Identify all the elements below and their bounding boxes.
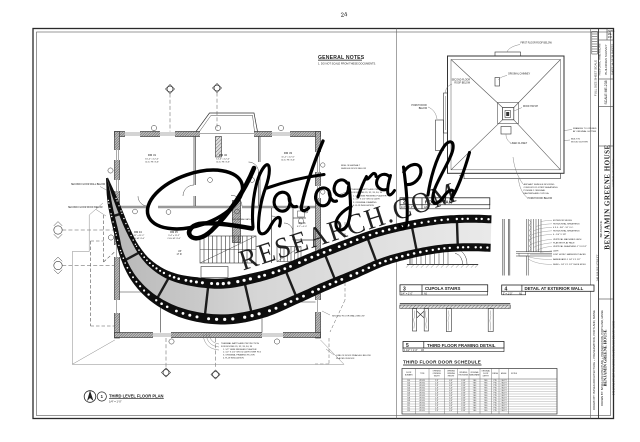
svg-text:RISE OF ASPHALT: RISE OF ASPHALT	[341, 164, 361, 167]
svg-text:2. 1/2" X 1/2" WOOD LATH OVER: 2. 1/2" X 1/2" WOOD LATH OVER PLS	[223, 351, 262, 354]
svg-text:SECOND FLOOR WALL BELOW: SECOND FLOOR WALL BELOW	[332, 315, 365, 318]
svg-text:313: 313	[407, 410, 410, 412]
svg-text:3: 3	[403, 286, 406, 292]
svg-text:ROOF HATCH: ROOF HATCH	[523, 105, 538, 108]
svg-text:LINEN CLOSET: LINEN CLOSET	[511, 143, 528, 145]
svg-text:PLASTER FLAT FACE: PLASTER FLAT FACE	[553, 242, 575, 245]
svg-text:1 1/2" = 1'-0": 1 1/2" = 1'-0"	[404, 349, 418, 352]
svg-text:PER SPREAD BATH: PER SPREAD BATH	[232, 218, 251, 221]
svg-text:SECOND FLOOR WALL BELOW: SECOND FLOOR WALL BELOW	[71, 183, 106, 186]
svg-text:CLG. HT. 8'-6": CLG. HT. 8'-6"	[216, 162, 230, 164]
svg-text:THIRD FLOOR FRAMING DETAIL: THIRD FLOOR FRAMING DETAIL	[427, 343, 496, 348]
svg-text:BENJAMIN GREENE HOUSE: BENJAMIN GREENE HOUSE	[602, 329, 607, 386]
svg-text:WOOD: WOOD	[419, 410, 425, 412]
svg-text:3" = 1'-0": 3" = 1'-0"	[503, 292, 513, 295]
svg-text:CUMBERLAND COUNTY: CUMBERLAND COUNTY	[612, 159, 615, 187]
svg-text:SECOND FLOOR: SECOND FLOOR	[452, 80, 471, 82]
svg-text:NUMBER: NUMBER	[405, 374, 413, 376]
svg-text:FOR ROOMS 31, 32, 33, 34, 35: FOR ROOMS 31, 32, 33, 34, 35	[351, 192, 383, 194]
svg-text:THIRD FLOOR DOOR SCHEDULE: THIRD FLOOR DOOR SCHEDULE	[403, 360, 481, 365]
svg-text:PLACED IN ROOF: PLACED IN ROOF	[336, 357, 355, 360]
svg-text:AT ORIGINAL GUTTER: AT ORIGINAL GUTTER	[573, 130, 597, 133]
svg-text:BENJAMIN GREENE HOUSE: BENJAMIN GREENE HOUSE	[603, 144, 611, 249]
svg-text:WOOD GUTTER: WOOD GUTTER	[571, 142, 588, 144]
svg-text:DEPTH: DEPTH	[483, 375, 490, 377]
svg-text:3. ORIGINAL FRAMING FLOOR: 3. ORIGINAL FRAMING FLOOR	[223, 354, 255, 357]
svg-text:WIDTH: WIDTH	[434, 375, 440, 377]
svg-text:RM 33: RM 33	[284, 151, 293, 155]
svg-text:NOTES: NOTES	[511, 373, 518, 375]
svg-text:16'-2" x 12'-6": 16'-2" x 12'-6"	[145, 158, 159, 160]
svg-text:RM 34: RM 34	[134, 230, 142, 234]
svg-text:248 MAINE STREET: 248 MAINE STREET	[596, 254, 600, 281]
svg-text:ASPHALT SHINGLE ROOFING: ASPHALT SHINGLE ROOFING	[524, 183, 555, 186]
svg-text:THIRD LEVEL FLOOR PLAN: THIRD LEVEL FLOOR PLAN	[109, 393, 164, 398]
svg-text:HORIZONTAL SHEATHING: HORIZONTAL SHEATHING	[553, 230, 580, 233]
svg-text:1/4" = 1'-0": 1/4" = 1'-0"	[401, 293, 413, 296]
svg-text:1. DO NOT SCALE FROM THESE DOC: 1. DO NOT SCALE FROM THESE DOCUMENTS.	[318, 62, 376, 66]
svg-text:DRAWN BY: BASEA ARCHITECTURE +: DRAWN BY: BASEA ARCHITECTURE + PRESERVAT…	[592, 310, 596, 410]
svg-text:RM 31: RM 31	[148, 153, 157, 157]
svg-text:PORCH ROOF: PORCH ROOF	[411, 105, 427, 107]
svg-text:PORCH ROOF BELOW: PORCH ROOF BELOW	[528, 198, 553, 200]
svg-text:4 - 1/4" X 7/8": 4 - 1/4" X 7/8"	[553, 234, 566, 236]
svg-text:SHINGLE ROOF BELOW: SHINGLE ROOF BELOW	[341, 168, 367, 170]
svg-text:THERMAL BATTS AND PROTECTION: THERMAL BATTS AND PROTECTION	[221, 342, 259, 345]
svg-text:4: 4	[505, 286, 508, 292]
svg-text:2'-8": 2'-8"	[435, 410, 439, 412]
svg-text:11'-2" x 12'-6": 11'-2" x 12'-6"	[281, 156, 295, 158]
svg-text:2 BUTT: 2 BUTT	[501, 410, 508, 412]
svg-text:JUST HORIZ. MARGINS PLACED: JUST HORIZ. MARGINS PLACED	[553, 253, 586, 256]
svg-text:BUILDINGS SURVEY: BUILDINGS SURVEY	[604, 44, 608, 74]
svg-text:LINE OF ROOF PEAK ALL BELOW: LINE OF ROOF PEAK ALL BELOW	[336, 354, 372, 357]
svg-text:6'-8": 6'-8"	[449, 410, 453, 412]
svg-text:BASEBOARD 1 1/4" X 5 1/2": BASEBOARD 1 1/4" X 5 1/2"	[553, 258, 581, 261]
svg-text:FIRST FLOOR ROOF BELOW: FIRST FLOOR ROOF BELOW	[521, 43, 553, 45]
svg-text:HORIZONTAL SHEATHING: HORIZONTAL SHEATHING	[553, 223, 580, 226]
svg-text:SECOND FLOOR ROOF BELOW: SECOND FLOOR ROOF BELOW	[68, 207, 103, 209]
svg-text:OVER WOOD STRIP SHEATHING: OVER WOOD STRIP SHEATHING	[524, 186, 558, 189]
svg-text:ROOF BELOW: ROOF BELOW	[454, 83, 470, 85]
svg-text:FOR ROOMS 31, 32, 33, 34, 35: FOR ROOMS 31, 32, 33, 34, 35	[221, 346, 253, 348]
svg-text:BRUNSWICK: BRUNSWICK	[600, 221, 603, 238]
svg-text:HISTORIC AMERICAN: HISTORIC AMERICAN	[598, 44, 602, 76]
svg-text:1/4" = 1'-0": 1/4" = 1'-0"	[109, 400, 122, 404]
svg-text:FINISH: FINISH	[492, 373, 498, 375]
svg-text:THICKNESS: THICKNESS	[458, 374, 469, 376]
svg-text:1. 1/2" GWB FINISHED PLASTER: 1. 1/2" GWB FINISHED PLASTER	[223, 348, 257, 351]
svg-text:HARDWARE: HARDWARE	[469, 373, 480, 376]
svg-text:HEIGHT: HEIGHT	[448, 375, 456, 377]
svg-text:238: 238	[608, 36, 613, 39]
svg-text:DETAIL AT EXTERIOR WALL: DETAIL AT EXTERIOR WALL	[525, 286, 584, 291]
svg-text:LATH: LATH	[553, 250, 559, 253]
svg-text:SHEET 24 OF 38 SHEETS: SHEET 24 OF 38 SHEETS	[611, 44, 615, 76]
svg-text:HINGE: HINGE	[501, 373, 507, 375]
svg-text:FULL SIZE SHEET SCALE: FULL SIZE SHEET SCALE	[593, 60, 597, 96]
svg-text:POSSIBLY ORIGINAL: POSSIBLY ORIGINAL	[524, 189, 546, 192]
svg-text:VERTICAL SHEATHING 1" X 8 1/2": VERTICAL SHEATHING 1" X 8 1/2"	[553, 245, 587, 248]
svg-text:1 3/8": 1 3/8"	[461, 410, 466, 412]
svg-text:ORIGINAL CHIMNEY: ORIGINAL CHIMNEY	[508, 73, 531, 76]
svg-text:EXTERIOR SIDING: EXTERIOR SIDING	[553, 220, 572, 222]
svg-text:SHIM + 1/4" X 1 1/2" SHOE MOLD: SHIM + 1/4" X 1 1/2" SHOE MOLD	[553, 264, 587, 266]
svg-text:5: 5	[406, 343, 409, 349]
svg-text:4 X 4 - 3/4" : 16" O.C.: 4 X 4 - 3/4" : 16" O.C.	[553, 227, 574, 229]
svg-text:CUPOLA STAIRS: CUPOLA STAIRS	[425, 286, 460, 291]
svg-text:BUILT IN: BUILT IN	[571, 139, 580, 141]
svg-text:14'-0" x 12'-6": 14'-0" x 12'-6"	[216, 158, 230, 160]
svg-text:BELOW: BELOW	[419, 108, 428, 110]
svg-text:17 R: 17 R	[177, 253, 182, 256]
svg-text:4. R-19 INSULATION: 4. R-19 INSULATION	[223, 357, 244, 360]
svg-text:CLG. HT. 8'-6": CLG. HT. 8'-6"	[145, 162, 159, 164]
svg-text:SCALE ME-238: SCALE ME-238	[604, 80, 608, 104]
svg-text:248 MAINE STREET BRUNSWICK C: 248 MAINE STREET BRUNSWICK CUMBERLAND CO…	[612, 321, 615, 395]
svg-text:CLG. HT. 8'-6": CLG. HT. 8'-6"	[281, 160, 295, 162]
svg-text:EASTERN AND CUPOLA: EASTERN AND CUPOLA	[524, 192, 550, 195]
svg-text:CLG. HT. 8'-6": CLG. HT. 8'-6"	[167, 238, 181, 240]
svg-text:9'-4" x 11'-2": 9'-4" x 11'-2"	[168, 235, 180, 237]
svg-text:FRAMING TO OPENED: FRAMING TO OPENED	[573, 127, 597, 130]
svg-text:VERTICAL MACHINED LATH: VERTICAL MACHINED LATH	[553, 238, 582, 241]
svg-text:RM 32: RM 32	[219, 153, 228, 157]
